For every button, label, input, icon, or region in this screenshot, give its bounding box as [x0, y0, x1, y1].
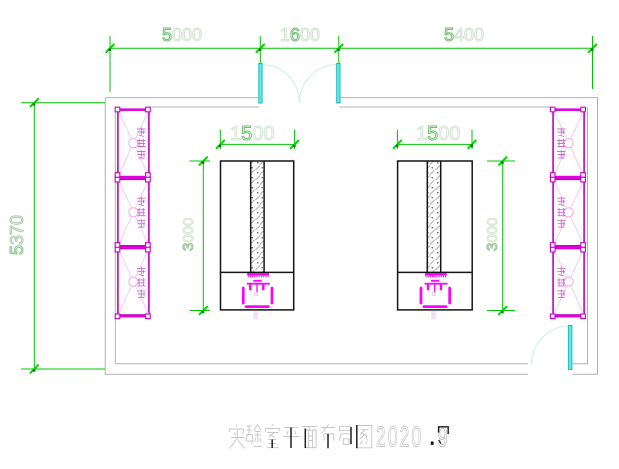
svg-text:5400: 5400 — [444, 25, 484, 45]
svg-text:1500: 1500 — [230, 123, 275, 145]
svg-text:2020: 2020 — [376, 421, 423, 454]
svg-text:5000: 5000 — [162, 25, 202, 45]
svg-text:1600: 1600 — [280, 25, 320, 45]
svg-text:3000: 3000 — [484, 218, 501, 251]
svg-text:3000: 3000 — [180, 218, 197, 251]
svg-text:5370: 5370 — [7, 215, 27, 255]
svg-text:1500: 1500 — [416, 123, 461, 145]
